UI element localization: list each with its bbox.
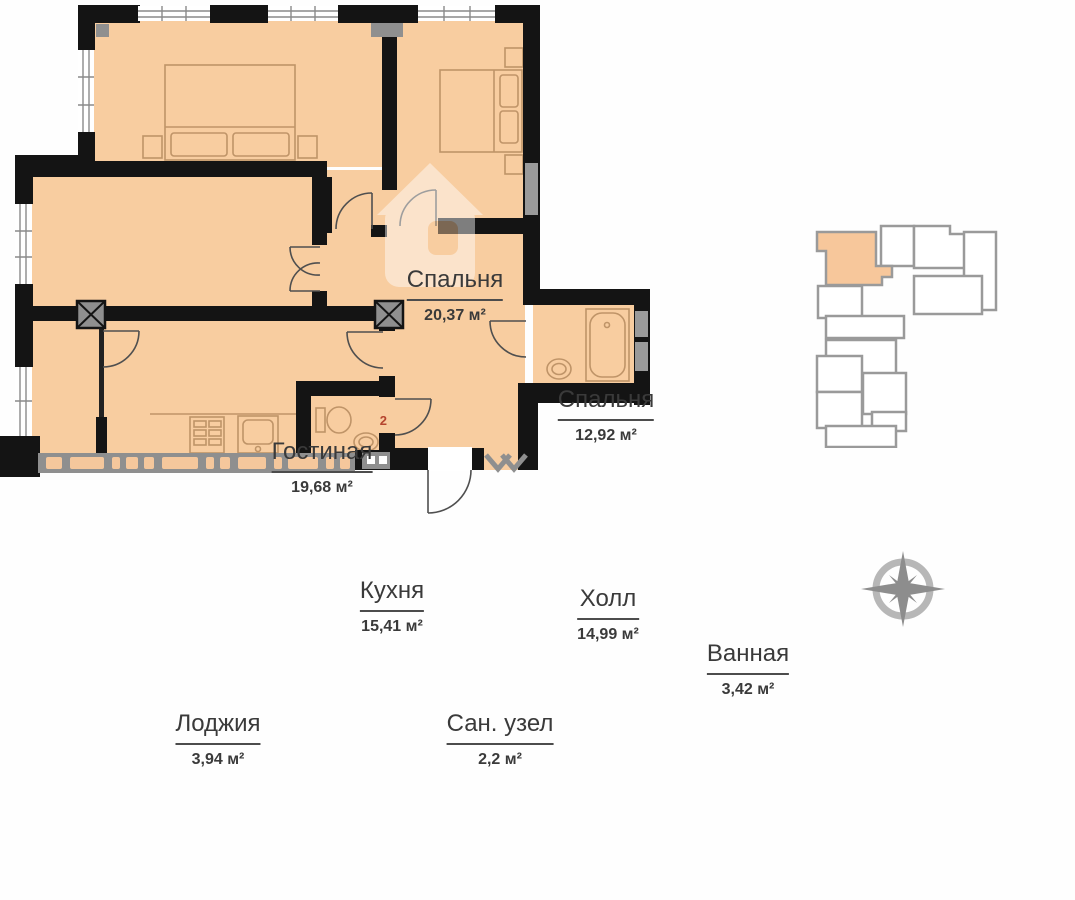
room-name: Гостиная	[272, 438, 373, 466]
window-icon	[418, 6, 495, 21]
room-area: 12,92 м²	[575, 427, 637, 445]
minimap-unit	[817, 392, 862, 428]
minimap-unit	[914, 276, 982, 314]
label-divider	[447, 743, 554, 745]
label-divider	[577, 618, 639, 620]
window-icon	[15, 204, 32, 284]
window-icon	[15, 367, 32, 436]
minimap-unit	[881, 226, 914, 266]
room-label-bathroom: Ванная 3,42 м²	[707, 640, 789, 699]
room-area: 20,37 м²	[424, 307, 486, 325]
room-label-kitchen: Кухня 15,41 м²	[360, 577, 424, 636]
room-area: 3,94 м²	[192, 751, 245, 769]
room-area: 19,68 м²	[291, 479, 353, 497]
entrance-opening	[428, 447, 472, 471]
compass-icon	[860, 545, 950, 635]
minimap-unit	[826, 426, 896, 447]
label-divider	[407, 299, 503, 301]
door-entrance	[428, 470, 471, 513]
room-area: 14,99 м²	[577, 626, 639, 644]
room-label-bedroom-1: Спальня 20,37 м²	[407, 266, 503, 325]
label-divider	[707, 673, 789, 675]
label-divider	[558, 419, 654, 421]
minimap-unit	[914, 226, 966, 268]
minimap-unit	[818, 286, 862, 318]
room-name: Холл	[580, 585, 637, 613]
room-name: Лоджия	[175, 710, 260, 738]
column-icon	[375, 301, 403, 328]
room-name: Спальня	[407, 266, 503, 294]
room-label-bedroom-2: Спальня 12,92 м²	[558, 386, 654, 445]
window-icon	[268, 6, 338, 21]
minimap-unit	[863, 373, 906, 414]
floor-plan-page: 3-х ком. кв 92,91м²	[0, 0, 1075, 900]
label-divider	[272, 471, 373, 473]
room-name: Сан. узел	[447, 710, 554, 738]
room-name: Ванная	[707, 640, 789, 668]
window-icon	[78, 50, 94, 132]
room-area: 3,42 м²	[722, 681, 775, 699]
room-area: 2,2 м²	[478, 751, 522, 769]
column-icon	[77, 301, 105, 328]
room-name: Спальня	[558, 386, 654, 414]
label-divider	[175, 743, 260, 745]
minimap-unit	[817, 356, 862, 392]
room-name: Кухня	[360, 577, 424, 605]
room-area: 15,41 м²	[361, 618, 423, 636]
building-minimap	[806, 216, 998, 448]
minimap-unit	[826, 316, 904, 338]
window-icon	[138, 6, 210, 21]
room-label-living: Гостиная 19,68 м²	[272, 438, 373, 497]
room-label-wc: Сан. узел 2,2 м²	[447, 710, 554, 769]
room-label-hall: Холл 14,99 м²	[577, 585, 639, 644]
label-divider	[360, 610, 424, 612]
room-label-loggia: Лоджия 3,94 м²	[175, 710, 260, 769]
wc-number-label: 2	[380, 413, 387, 428]
